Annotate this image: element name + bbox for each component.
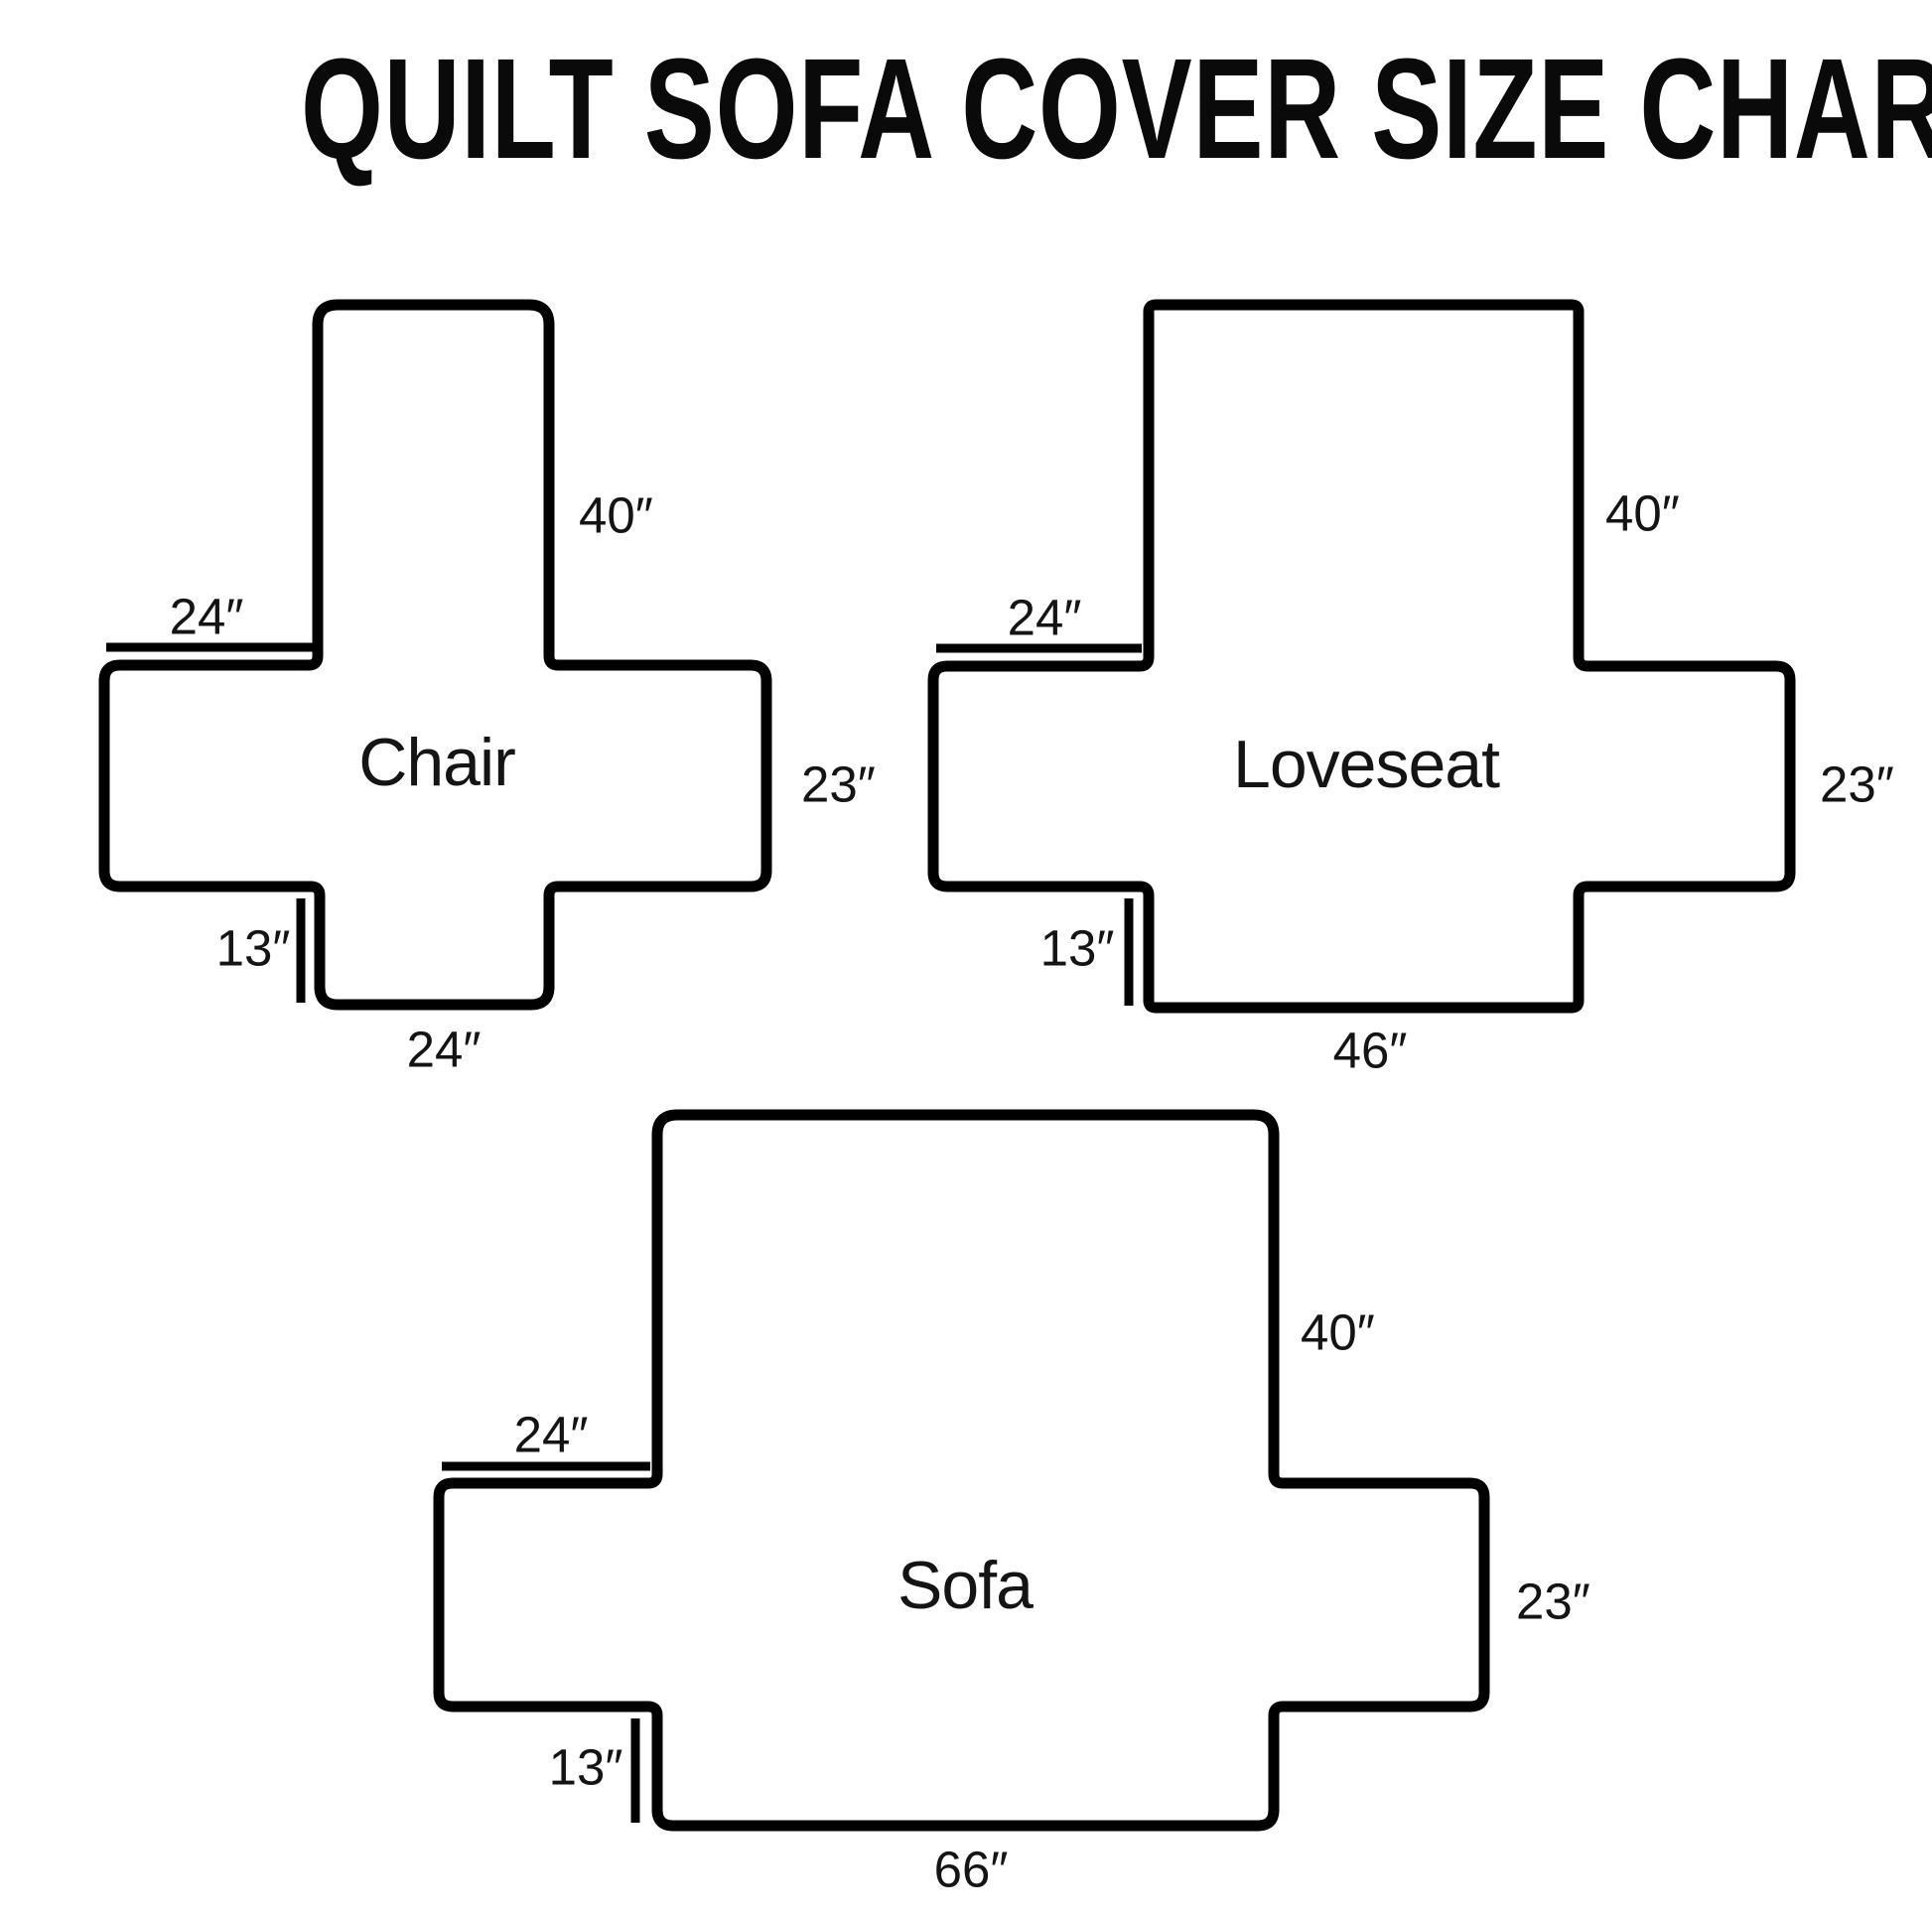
dim-flap-height-loveseat: 13″: [1040, 920, 1115, 977]
dim-back-height-sofa: 40″: [1301, 1304, 1375, 1361]
dim-arm-top-loveseat: 24″: [1008, 590, 1082, 646]
dim-side-height-loveseat: 23″: [1820, 756, 1894, 813]
dim-arm-top-sofa: 24″: [514, 1407, 589, 1463]
dim-back-height-loveseat: 40″: [1605, 485, 1680, 542]
cover-outline-loveseat: [933, 305, 1790, 1008]
dim-arm-top-chair: 24″: [170, 589, 244, 645]
cover-name-sofa: Sofa: [897, 1548, 1034, 1623]
dim-side-height-chair: 23″: [801, 756, 876, 813]
cover-sofa: 40″24″Sofa23″13″66″: [439, 1115, 1590, 1898]
dim-bottom-width-sofa: 66″: [934, 1842, 1009, 1898]
cover-name-chair: Chair: [358, 725, 515, 800]
cover-name-loveseat: Loveseat: [1233, 727, 1500, 802]
cover-chair: 40″24″Chair23″13″24″: [104, 305, 876, 1078]
cover-outline-chair: [104, 305, 766, 1005]
dim-bottom-width-chair: 24″: [407, 1022, 482, 1078]
dim-flap-height-sofa: 13″: [549, 1739, 623, 1796]
cover-loveseat: 40″24″Loveseat23″13″46″: [933, 305, 1894, 1079]
dim-side-height-sofa: 23″: [1516, 1574, 1590, 1630]
dim-flap-height-chair: 13″: [216, 920, 291, 977]
cover-diagrams: 40″24″Chair23″13″24″40″24″Loveseat23″13″…: [0, 0, 1932, 1918]
dim-bottom-width-loveseat: 46″: [1333, 1023, 1408, 1079]
dim-back-height-chair: 40″: [579, 487, 653, 544]
